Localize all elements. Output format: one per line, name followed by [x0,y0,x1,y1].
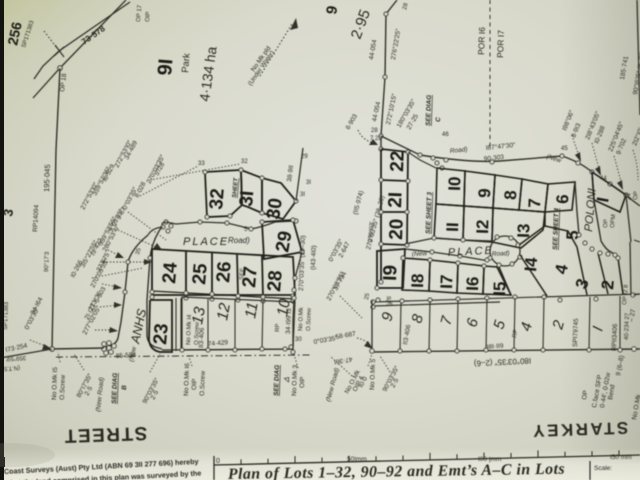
svg-text:OIP: OIP [145,11,152,22]
svg-text:3I: 3I [236,190,258,208]
svg-text:OIP: OIP [191,379,198,390]
svg-text:SEE DIAG: SEE DIAG [111,373,119,404]
svg-text:32: 32 [241,159,248,165]
svg-text:Scale:: Scale: [594,465,612,472]
svg-text:PLACE: PLACE [183,236,229,248]
svg-text:3I: 3I [306,180,311,186]
svg-text:7 28: 7 28 [370,136,382,142]
svg-text:POR I6: POR I6 [476,27,487,55]
svg-text:Road): Road) [492,250,510,258]
svg-text:OIP: OIP [299,377,306,388]
svg-text:7: 7 [525,198,544,208]
svg-text:20: 20 [386,218,408,240]
svg-text:SEE DIAG: SEE DIAG [425,95,433,126]
svg-text:II: II [443,222,462,232]
svg-text:II3·406: II3·406 [198,327,206,348]
svg-text:2I: 2I [385,192,407,209]
svg-text:O.Screw: O.Screw [199,371,207,396]
svg-text:C: C [435,117,442,122]
svg-text:45: 45 [561,146,568,152]
svg-text:23: 23 [150,323,173,346]
svg-text:I7: I7 [437,274,456,289]
svg-text:I6: I6 [463,276,482,291]
svg-text:O.Screw: O.Screw [59,375,67,400]
svg-text:No O.Mk 5: No O.Mk 5 [369,358,377,390]
svg-text:I8I·II9: I8I·II9 [487,343,505,351]
svg-text:0: 0 [216,458,220,465]
svg-text:SPI79745: SPI79745 [572,318,580,347]
svg-text:2: 2 [598,279,618,290]
svg-text:No O.Mk: No O.Mk [298,306,305,331]
svg-text:SEE: SEE [239,268,246,280]
svg-text:33: 33 [198,161,205,167]
svg-text:POR I7: POR I7 [495,30,506,58]
svg-text:85·594: 85·594 [116,352,137,360]
svg-text:SP171383: SP171383 [3,301,10,330]
svg-text:SEE DIAG: SEE DIAG [273,365,281,396]
svg-text:28: 28 [264,270,287,293]
svg-text:OPM: OPM [610,214,617,228]
svg-text:OP: OP [633,191,640,200]
svg-text:50|mm: 50|mm [347,456,367,463]
svg-text:I8: I8 [408,273,427,288]
svg-text:9: 9 [475,188,494,198]
svg-text:(I43·4I0): (I43·4I0) [310,245,318,270]
svg-text:Road): Road) [228,236,250,245]
svg-text:29: 29 [272,229,296,253]
svg-text:3I: 3I [300,192,305,198]
svg-text:RP: RP [275,324,281,333]
svg-text:RPII3406: RPII3406 [611,323,619,351]
svg-text:O.Screw: O.Screw [306,307,313,331]
svg-text:STARKEY: STARKEY [530,418,628,440]
svg-text:B: B [121,385,128,390]
svg-text:I0: I0 [445,176,464,191]
svg-text:I4: I4 [521,256,541,272]
svg-text:I9: I9 [380,265,402,282]
svg-text:OP: OP [603,219,610,228]
svg-text:I50 mm: I50 mm [610,454,632,461]
svg-text:195·045: 195·045 [42,164,52,192]
svg-text:28: 28 [371,128,378,134]
svg-text:26: 26 [386,302,393,308]
svg-text:STREET: STREET [63,422,148,446]
svg-text:26: 26 [213,261,236,284]
svg-text:′5′: ′5′ [243,227,249,233]
svg-text:46: 46 [442,132,449,138]
svg-text:22: 22 [387,150,409,172]
svg-text:90°17′3: 90°17′3 [44,251,51,272]
svg-text:30: 30 [295,337,302,343]
svg-text:△: △ [283,377,290,383]
svg-text:32: 32 [206,188,229,211]
svg-text:6: 6 [553,194,572,204]
svg-text:34·I99 I3: 34·I99 I3 [285,308,293,334]
svg-text:Park: Park [180,53,193,74]
svg-text:8: 8 [501,190,520,200]
svg-text:30: 30 [263,197,287,221]
svg-text:(New: (New [412,250,429,258]
svg-text:No O.Mk I6: No O.Mk I6 [183,363,191,396]
svg-text:9I: 9I [154,58,177,77]
svg-text:11: 11 [242,301,262,320]
svg-text:25: 25 [189,262,212,285]
svg-text:12: 12 [214,301,234,321]
svg-text:PLACE: PLACE [448,245,495,259]
svg-text:RP14094: RP14094 [32,204,40,232]
svg-text:No O.Mk I5: No O.Mk I5 [51,367,59,400]
svg-text:No O.Mk I4: No O.Mk I4 [186,314,193,345]
svg-text:I2: I2 [473,219,492,234]
svg-text:24: 24 [159,261,182,284]
svg-text:SEE SHEET 3: SEE SHEET 3 [425,192,433,235]
svg-text:No O.Mk 3: No O.Mk 3 [291,364,299,396]
